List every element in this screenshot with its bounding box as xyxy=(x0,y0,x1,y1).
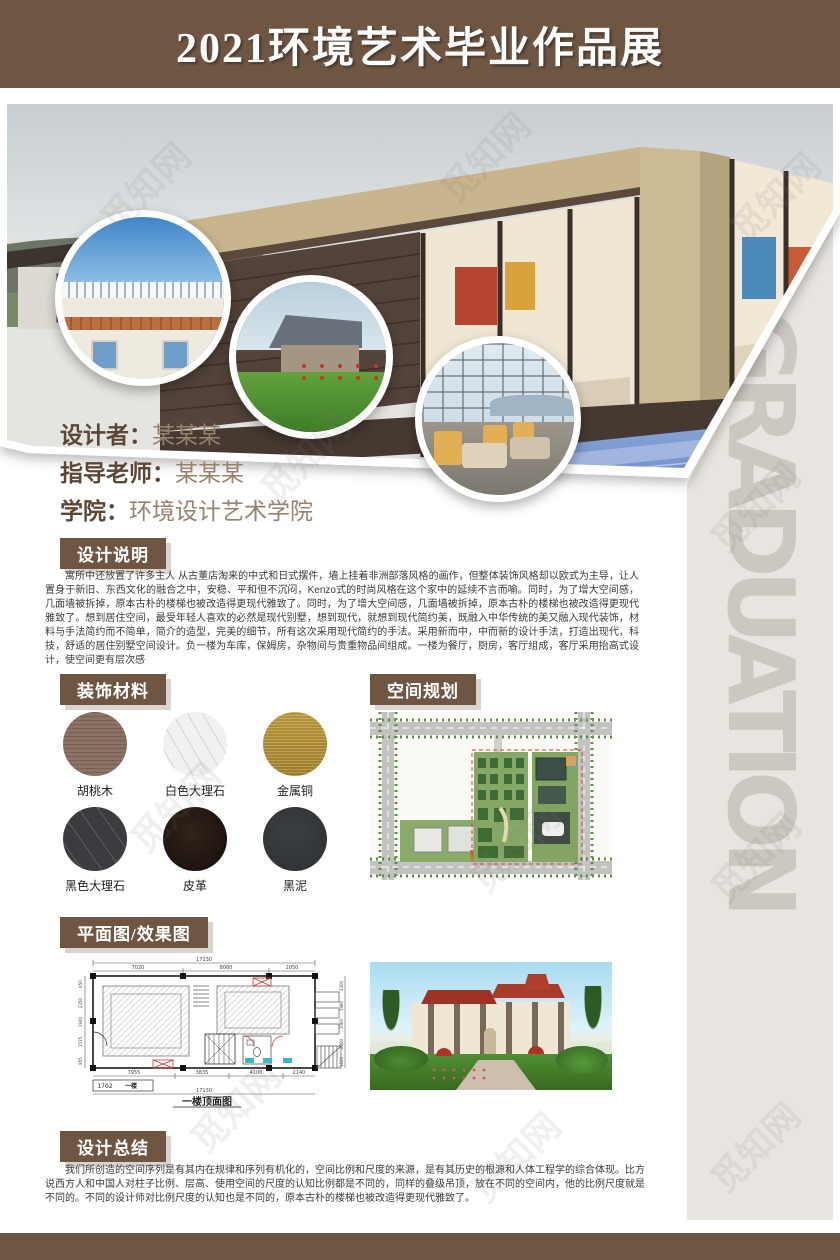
material-item: 黑泥 xyxy=(245,807,345,902)
floorplan-caption: 一楼顶面图 xyxy=(182,1095,232,1108)
material-label: 金属铜 xyxy=(277,782,313,799)
dim-bottom-seg: 4100 xyxy=(250,1070,263,1076)
palm-tree xyxy=(578,986,608,1052)
poster-title: 2021环境艺术毕业作品展 xyxy=(176,14,664,75)
dim-right-seg: 1060 xyxy=(339,1018,344,1029)
advisor-label: 指导老师： xyxy=(60,460,175,486)
materials-grid: 胡桃木 白色大理石 金属铜 黑色大理石 皮革 黑泥 xyxy=(45,712,347,902)
design-description-text: 寓所中还放置了许多主人 从古董店淘来的中式和日式摆件，墙上挂着非洲部落风格的画作… xyxy=(45,570,639,668)
floorplan-unit-name: 一楼 xyxy=(125,1082,137,1090)
college-label: 学院： xyxy=(60,498,129,524)
section-header-space-planning: 空间规划 xyxy=(370,674,476,705)
section-header-floorplan-render: 平面图/效果图 xyxy=(60,917,208,948)
material-label: 白色大理石 xyxy=(165,782,225,799)
villa-balustrade xyxy=(62,282,224,298)
inset-photo-cottage-garden xyxy=(229,275,393,439)
footer-bar xyxy=(0,1233,840,1260)
patio-sofa xyxy=(462,443,508,467)
site-plan-image xyxy=(370,712,612,880)
material-label: 黑泥 xyxy=(283,877,307,894)
dim-right-seg: 3300 xyxy=(339,980,344,991)
floorplan-unit-number: 1702 xyxy=(97,1083,112,1090)
material-item: 胡桃木 xyxy=(45,712,145,807)
dim-top-total: 17130 xyxy=(196,957,212,963)
dim-right-seg: 1980 xyxy=(339,1000,344,1011)
cottage-flowers xyxy=(296,360,379,381)
dim-left-seg: 1940 xyxy=(78,1016,83,1027)
dim-left-seg: 650 xyxy=(78,980,83,988)
render-image-villa xyxy=(370,962,612,1090)
poster: 2021环境艺术毕业作品展 GRADUATION xyxy=(0,0,840,1260)
material-swatch-leather xyxy=(163,807,227,871)
dim-top-seg: 7020 xyxy=(132,965,145,971)
section-header-design-description: 设计说明 xyxy=(60,538,166,569)
designer-value: 某某某 xyxy=(152,422,221,448)
material-label: 皮革 xyxy=(183,877,207,894)
patio-mountains xyxy=(490,395,574,416)
palm-tree xyxy=(376,990,406,1052)
section-header-design-summary: 设计总结 xyxy=(60,1131,166,1162)
material-item: 黑色大理石 xyxy=(45,807,145,902)
designer-label: 设计者： xyxy=(60,422,152,448)
patio-sofa xyxy=(510,437,550,458)
designer-line: 设计者：某某某 xyxy=(60,416,313,454)
material-item: 白色大理石 xyxy=(145,712,245,807)
villa-window xyxy=(91,340,118,370)
header-bar: 2021环境艺术毕业作品展 xyxy=(0,0,840,88)
material-label: 胡桃木 xyxy=(77,782,113,799)
college-value: 环境设计艺术学院 xyxy=(129,498,313,524)
dim-right-seg: 1620 xyxy=(339,1056,344,1067)
dim-bottom-seg: 3835 xyxy=(196,1070,209,1076)
villa-wall xyxy=(62,285,224,379)
dim-left-seg: 955 xyxy=(78,1057,83,1065)
patio-cushion xyxy=(434,431,461,464)
material-swatch-white-marble xyxy=(163,712,227,776)
villa-window xyxy=(162,340,189,370)
dim-top-seg: 8060 xyxy=(220,965,233,971)
dim-top-seg: 2050 xyxy=(286,965,299,971)
material-item: 皮革 xyxy=(145,807,245,902)
advisor-line: 指导老师：某某某 xyxy=(60,454,313,492)
villa-roof-tiles xyxy=(62,317,224,330)
dim-bottom-seg: 7955 xyxy=(128,1070,141,1076)
flower-bed xyxy=(430,1066,490,1082)
floor-plan-drawing: 17130 7020 8060 2050 7955 3835 4100 2140… xyxy=(57,956,347,1108)
material-swatch-black-clay xyxy=(263,807,327,871)
college-line: 学院：环境设计艺术学院 xyxy=(60,492,313,530)
villa-render-tower-roof xyxy=(520,974,554,990)
material-item: 金属铜 xyxy=(245,712,345,807)
designer-info: 设计者：某某某 指导老师：某某某 学院：环境设计艺术学院 xyxy=(60,416,313,530)
material-swatch-walnut xyxy=(63,712,127,776)
garden-bush xyxy=(556,1046,608,1074)
material-swatch-black-marble xyxy=(63,807,127,871)
dim-bottom-seg: 2140 xyxy=(293,1070,306,1076)
villa-sky xyxy=(62,217,224,285)
dim-bottom-total: 17130 xyxy=(196,1088,212,1094)
inset-photo-patio-sofas xyxy=(415,336,581,502)
material-swatch-copper xyxy=(263,712,327,776)
material-label: 黑色大理石 xyxy=(65,877,125,894)
dim-left-seg: 2350 xyxy=(78,997,83,1008)
dim-left-seg: 1515 xyxy=(78,1036,83,1047)
villa-render-roof xyxy=(416,990,502,1004)
inset-photo-mediterranean-villa xyxy=(55,210,231,386)
garden-bush xyxy=(374,1046,428,1072)
advisor-value: 某某某 xyxy=(175,460,244,486)
design-summary-text: 我们所创造的空间序列是有其内在规律和序列有机化的，空间比例和尺度的来源，是有其历… xyxy=(45,1164,645,1206)
section-header-materials: 装饰材料 xyxy=(60,674,166,705)
